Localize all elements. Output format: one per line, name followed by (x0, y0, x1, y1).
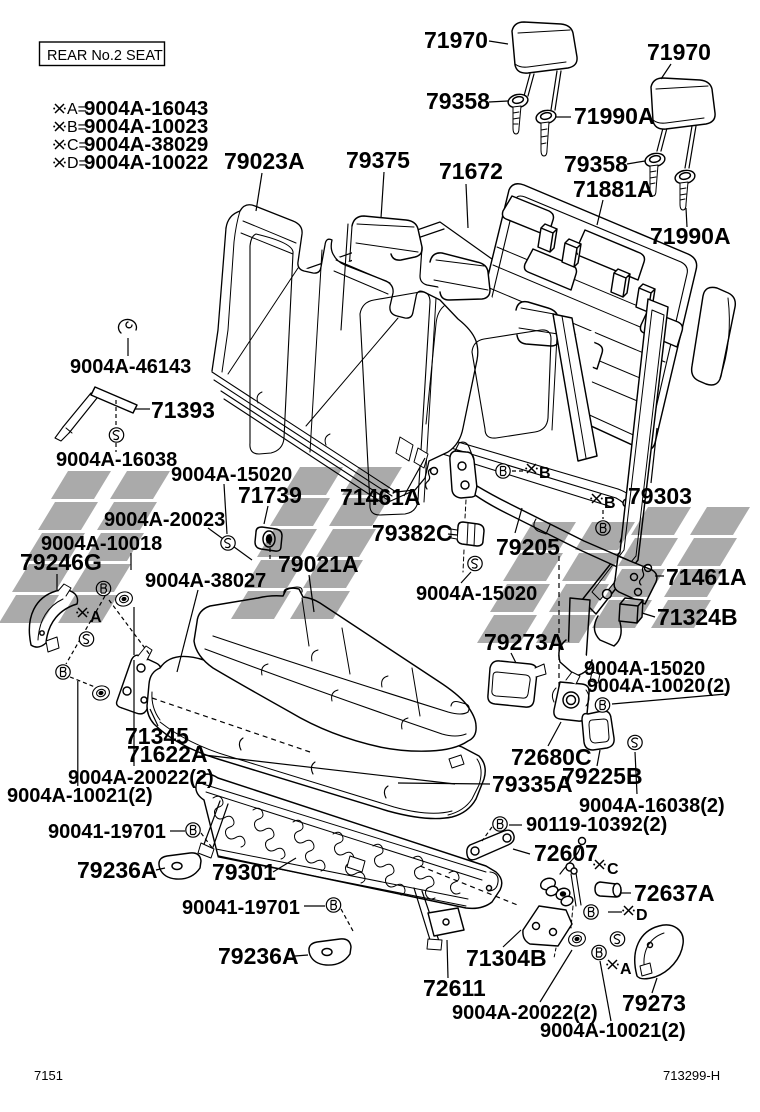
svg-text:79273: 79273 (622, 990, 686, 1016)
svg-text:71881A: 71881A (573, 176, 654, 202)
svg-text:71304B: 71304B (466, 945, 547, 971)
svg-text:71393: 71393 (151, 397, 215, 423)
svg-text:B: B (604, 495, 616, 512)
svg-text:REAR No.2 SEAT: REAR No.2 SEAT (47, 48, 163, 64)
svg-text:79375: 79375 (346, 147, 410, 173)
svg-text:90119-10392(2): 90119-10392(2) (526, 814, 667, 836)
svg-text:7151: 7151 (34, 1068, 63, 1083)
svg-text:713299-H: 713299-H (663, 1068, 720, 1083)
svg-text:72611: 72611 (423, 975, 486, 1001)
svg-text:72607: 72607 (534, 840, 598, 866)
svg-text:9004A-46143: 9004A-46143 (70, 356, 191, 378)
svg-text:79301: 79301 (212, 859, 276, 885)
svg-text:79023A: 79023A (224, 148, 305, 174)
svg-text:79382C: 79382C (372, 520, 453, 546)
svg-text:79335A: 79335A (492, 771, 573, 797)
svg-text:79225B: 79225B (562, 763, 643, 789)
svg-text:B: B (539, 465, 551, 482)
svg-text:9004A-38027: 9004A-38027 (145, 570, 266, 592)
svg-text:90041-19701: 90041-19701 (48, 821, 166, 843)
svg-text:79303: 79303 (628, 483, 692, 509)
svg-text:9004A-10021(2): 9004A-10021(2) (7, 785, 153, 807)
svg-text:90041-19701: 90041-19701 (182, 897, 300, 919)
svg-text:C: C (607, 861, 619, 878)
svg-text:71672: 71672 (439, 158, 503, 184)
svg-text:D: D (636, 907, 648, 924)
svg-text:71622A: 71622A (127, 741, 208, 767)
svg-text:71970: 71970 (647, 39, 711, 65)
svg-text:9004A-10022: 9004A-10022 (84, 151, 208, 174)
svg-text:72637A: 72637A (634, 880, 715, 906)
svg-text:9004A-10021(2): 9004A-10021(2) (540, 1020, 686, 1042)
svg-text:71990A: 71990A (650, 223, 731, 249)
svg-text:71990A: 71990A (574, 103, 655, 129)
svg-text:9004A-16038: 9004A-16038 (56, 449, 177, 471)
svg-text:79358: 79358 (564, 151, 628, 177)
svg-text:79358: 79358 (426, 88, 490, 114)
svg-text:A: A (620, 961, 632, 978)
svg-text:79236A: 79236A (218, 943, 299, 969)
svg-text:71970: 71970 (424, 27, 488, 53)
svg-text:9004A-10020 (2): 9004A-10020 (2) (587, 675, 731, 697)
svg-text:79236A: 79236A (77, 857, 158, 883)
